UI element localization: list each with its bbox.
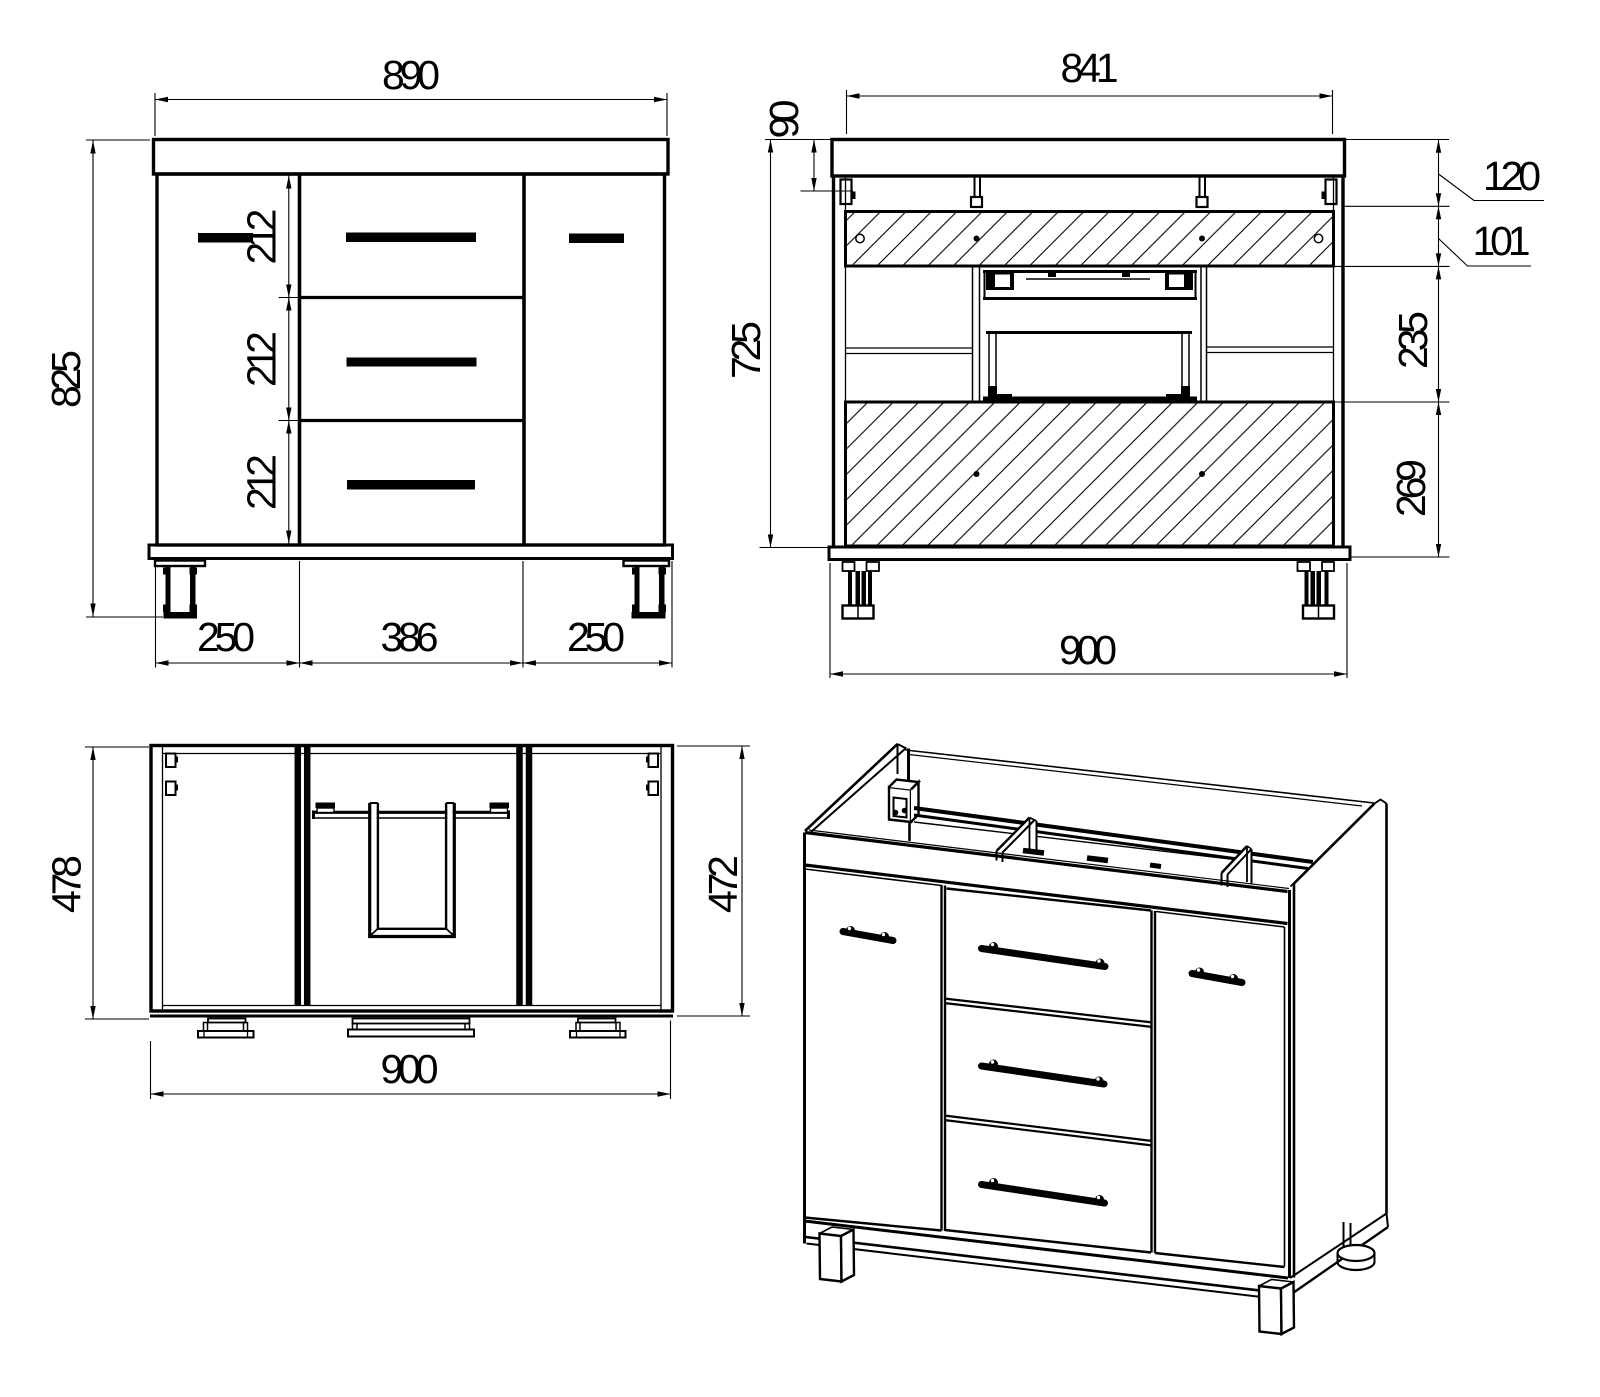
svg-text:478: 478 xyxy=(44,855,90,913)
svg-text:386: 386 xyxy=(381,614,439,660)
svg-text:212: 212 xyxy=(239,209,285,265)
svg-text:890: 890 xyxy=(382,52,440,98)
svg-text:120: 120 xyxy=(1483,153,1541,199)
svg-text:725: 725 xyxy=(723,321,769,379)
svg-text:101: 101 xyxy=(1473,218,1531,264)
svg-text:250: 250 xyxy=(197,614,255,660)
svg-text:90: 90 xyxy=(761,100,807,139)
svg-text:472: 472 xyxy=(700,855,746,913)
svg-text:269: 269 xyxy=(1388,459,1434,517)
svg-text:250: 250 xyxy=(567,614,625,660)
svg-text:825: 825 xyxy=(43,350,89,408)
svg-text:841: 841 xyxy=(1061,45,1119,91)
svg-text:235: 235 xyxy=(1390,311,1436,369)
svg-text:212: 212 xyxy=(239,454,285,510)
svg-text:900: 900 xyxy=(381,1046,439,1092)
svg-text:212: 212 xyxy=(239,331,285,387)
svg-text:900: 900 xyxy=(1059,627,1117,673)
